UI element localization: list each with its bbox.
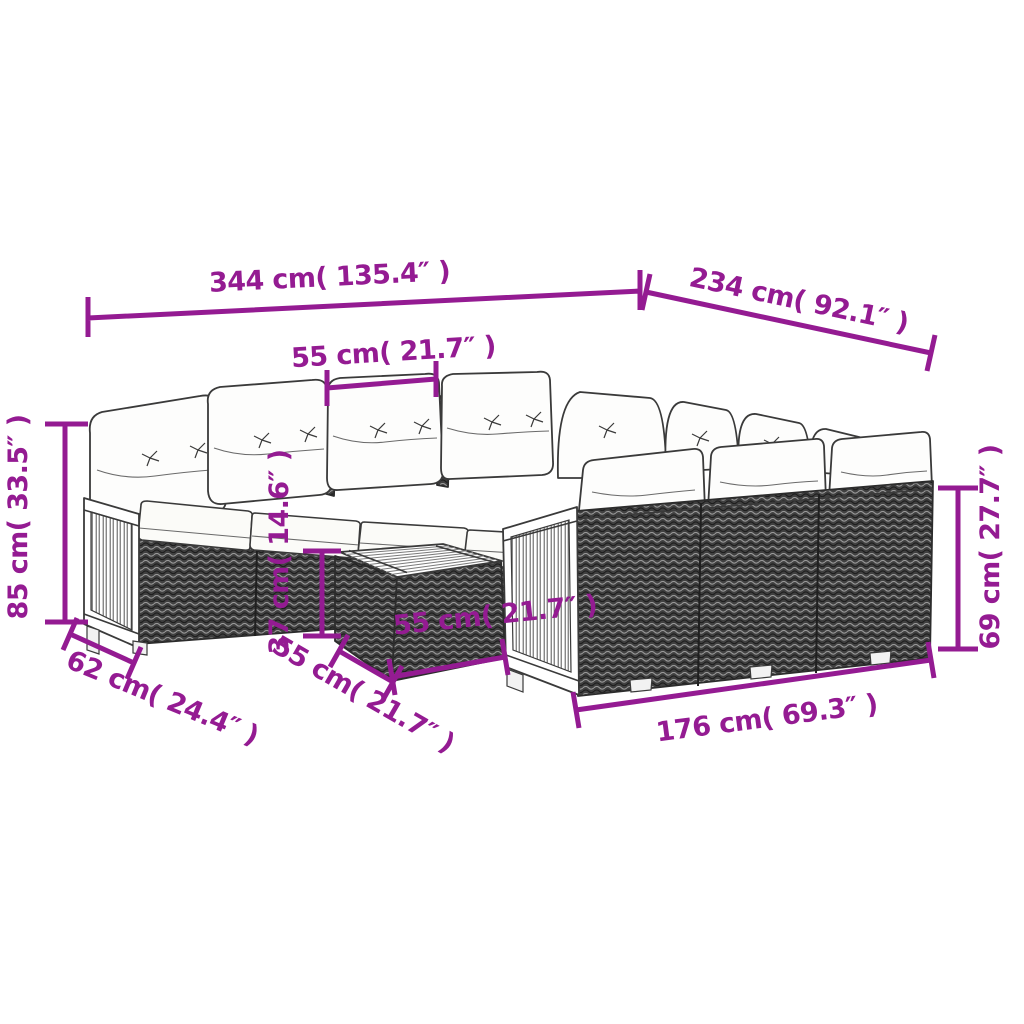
sofa-foot — [870, 651, 891, 665]
dimension-overall-depth: 234 cm( 92.1″ ) — [642, 262, 935, 371]
product-dimension-diagram: 344 cm( 135.4″ ) 234 cm( 92.1″ ) 55 cm( … — [0, 0, 1024, 1024]
armrest-depth-label: 62 cm( 24.4″ ) — [62, 645, 263, 752]
right-section-back-panel — [576, 481, 933, 696]
sofa-foot — [630, 678, 652, 692]
overall-height-label: 85 cm( 33.5″ ) — [3, 415, 34, 620]
dimension-overall-width: 344 cm( 135.4″ ) — [88, 256, 640, 337]
left-arm-panel — [84, 498, 147, 655]
table-height-label: 37 cm( 14.6″ ) — [264, 450, 295, 655]
dimension-overall-height: 85 cm( 33.5″ ) — [3, 415, 88, 622]
sofa-set-illustration — [84, 372, 933, 696]
dimension-line — [45, 424, 88, 622]
back-cushion — [441, 372, 553, 479]
sofa-foot — [750, 665, 772, 679]
dimension-back-height: 69 cm( 27.7″ ) — [938, 445, 1006, 650]
overall-depth-label: 234 cm( 92.1″ ) — [686, 262, 911, 339]
back-height-label: 69 cm( 27.7″ ) — [975, 445, 1006, 650]
back-cushions-long-row — [90, 372, 553, 522]
diagram-canvas: 344 cm( 135.4″ ) 234 cm( 92.1″ ) 55 cm( … — [0, 0, 1024, 1024]
seat-width-label: 55 cm( 21.7″ ) — [290, 331, 496, 374]
right-section-width-label: 176 cm( 69.3″ ) — [654, 689, 879, 749]
overall-width-label: 344 cm( 135.4″ ) — [208, 256, 450, 299]
dimension-line — [938, 488, 978, 649]
